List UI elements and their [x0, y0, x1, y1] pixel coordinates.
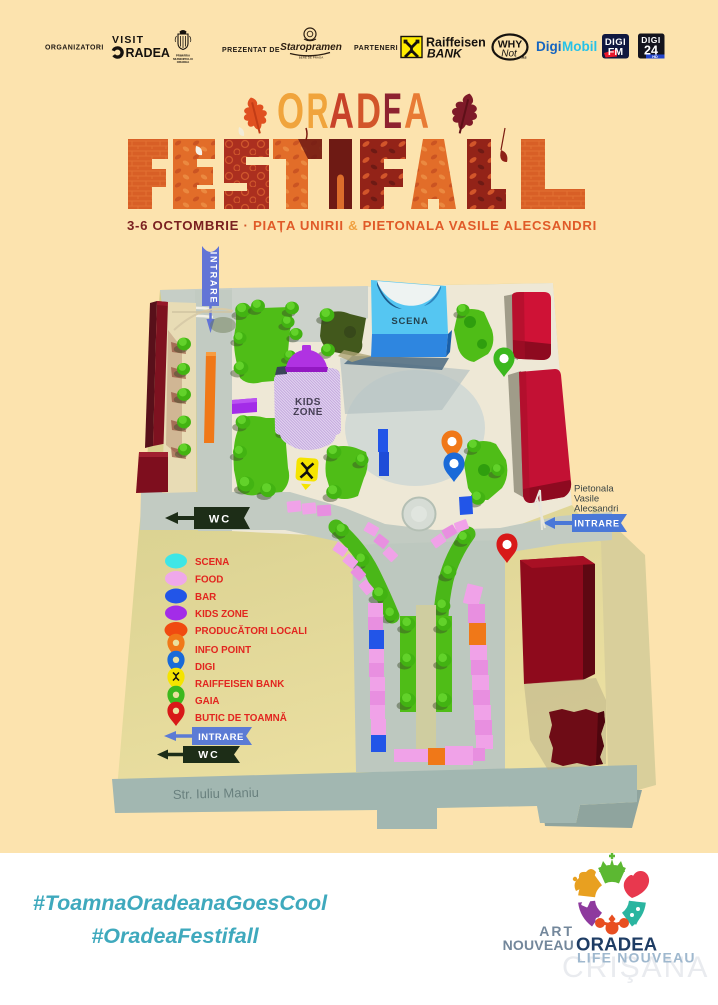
- svg-text:BAR: BAR: [195, 592, 216, 603]
- svg-text:BANK: BANK: [427, 47, 463, 61]
- svg-text:SCENA: SCENA: [391, 316, 428, 327]
- svg-text:A: A: [404, 83, 429, 139]
- svg-text:SCENA: SCENA: [195, 557, 229, 568]
- svg-text:RADEA: RADEA: [126, 46, 170, 60]
- svg-text:O: O: [277, 83, 304, 139]
- svg-text:Not: Not: [501, 49, 518, 60]
- svg-text:INTRARE: INTRARE: [574, 519, 620, 529]
- svg-text:ORGANIZATORI: ORGANIZATORI: [45, 45, 104, 52]
- svg-text:Mobil: Mobil: [562, 39, 597, 54]
- svg-text:Str. Iuliu Maniu: Str. Iuliu Maniu: [173, 785, 259, 802]
- svg-text:R: R: [307, 83, 329, 139]
- svg-text:PARTENERI: PARTENERI: [354, 45, 398, 52]
- svg-text:A: A: [329, 83, 354, 139]
- svg-text:KIDS ZONE: KIDS ZONE: [195, 609, 249, 620]
- svg-text:FOOD: FOOD: [195, 575, 223, 586]
- svg-text:PRODUCĂTORI LOCALI: PRODUCĂTORI LOCALI: [195, 626, 307, 637]
- svg-text:LIFE NOUVEAU: LIFE NOUVEAU: [577, 950, 696, 966]
- svg-text:FM: FM: [608, 46, 623, 58]
- svg-text:RAIFFEISEN BANK: RAIFFEISEN BANK: [195, 679, 284, 690]
- svg-text:D: D: [356, 83, 381, 139]
- svg-text:NOUVEAU: NOUVEAU: [503, 937, 574, 953]
- svg-text:BUTIC DE TOAMNĂ: BUTIC DE TOAMNĂ: [195, 713, 287, 724]
- svg-text:ORADEA: ORADEA: [177, 60, 190, 64]
- svg-text:INFO POINT: INFO POINT: [195, 645, 251, 656]
- svg-text:INTRARE: INTRARE: [209, 252, 219, 305]
- svg-text:HD: HD: [652, 55, 658, 59]
- svg-text:WC: WC: [198, 749, 220, 761]
- svg-text:ZONE: ZONE: [293, 407, 323, 418]
- svg-text:3-6 OCTOMBRIE · PIAȚA UNIRII &: 3-6 OCTOMBRIE · PIAȚA UNIRII & PIETONALA…: [127, 218, 597, 233]
- svg-text:Digi: Digi: [536, 39, 562, 54]
- svg-text:Alecsandri: Alecsandri: [574, 504, 618, 515]
- svg-text:#ToamnaOradeanaGoesCool: #ToamnaOradeanaGoesCool: [33, 891, 328, 915]
- svg-text:E: E: [383, 83, 402, 139]
- svg-text:BERE DE PRAGA: BERE DE PRAGA: [299, 56, 324, 60]
- svg-text:VISIT: VISIT: [112, 34, 144, 46]
- svg-text:.as: .as: [521, 55, 527, 60]
- svg-text:Staropramen: Staropramen: [280, 42, 342, 53]
- svg-text:#OradeaFestifall: #OradeaFestifall: [91, 924, 259, 948]
- svg-text:DIGI: DIGI: [195, 662, 215, 673]
- svg-text:WC: WC: [209, 514, 231, 526]
- svg-text:INTRARE: INTRARE: [198, 732, 244, 743]
- svg-text:GAIA: GAIA: [195, 696, 220, 707]
- svg-text:PREZENTAT DE: PREZENTAT DE: [222, 47, 280, 54]
